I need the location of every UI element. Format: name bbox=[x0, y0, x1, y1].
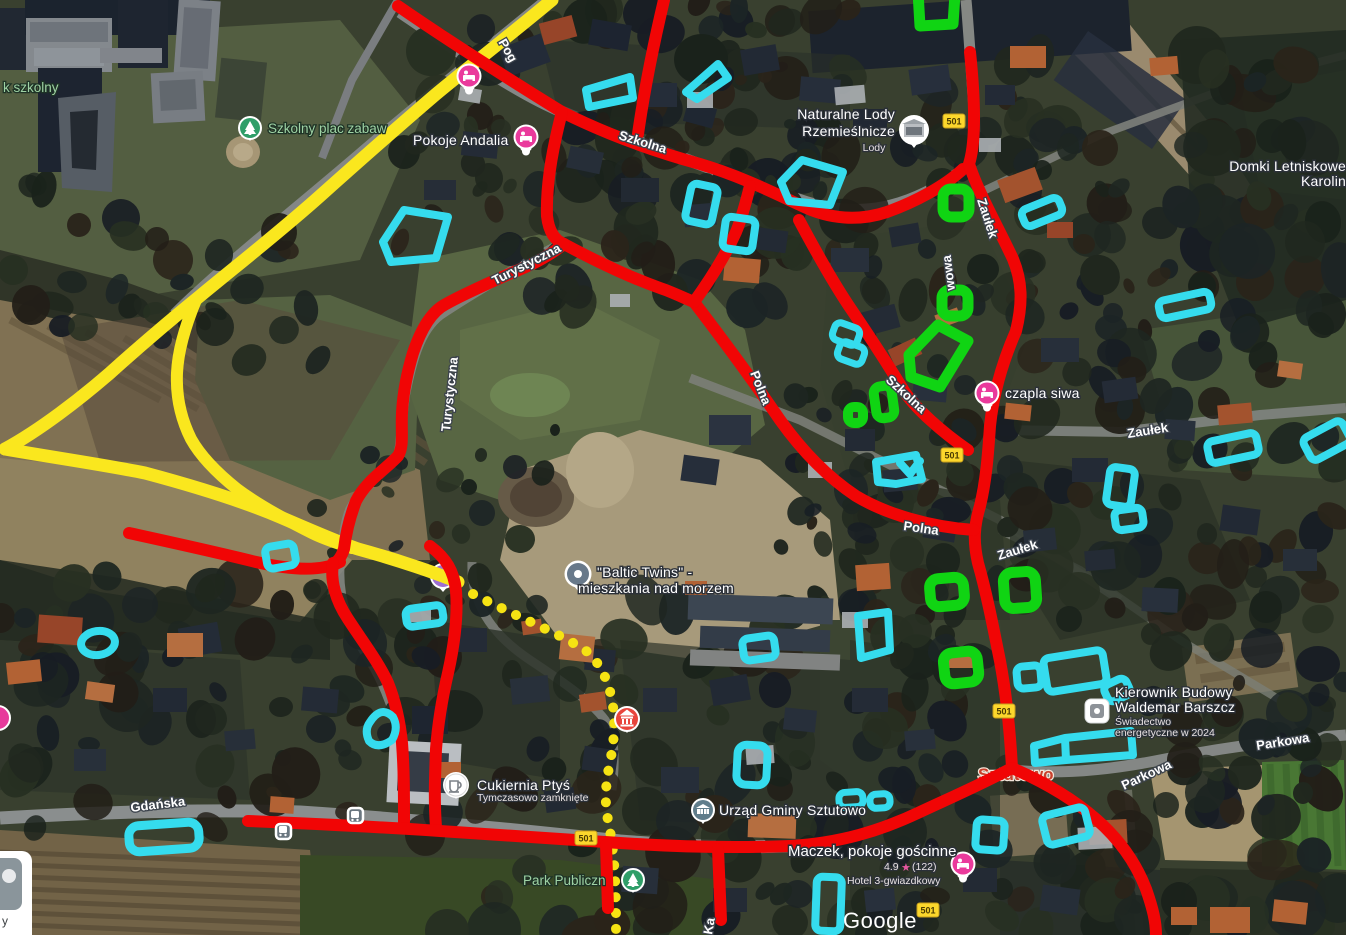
svg-text:501: 501 bbox=[578, 834, 593, 844]
svg-text:Urząd Gminy Sztutowo: Urząd Gminy Sztutowo bbox=[719, 802, 866, 818]
svg-text:Domki Letniskowe: Domki Letniskowe bbox=[1229, 158, 1346, 174]
svg-text:Tymczasowo zamknięte: Tymczasowo zamknięte bbox=[477, 792, 589, 804]
svg-text:Pokoje Andalia: Pokoje Andalia bbox=[413, 132, 508, 148]
svg-text:501: 501 bbox=[946, 117, 961, 127]
svg-text:czapla siwa: czapla siwa bbox=[1005, 385, 1080, 401]
svg-text:501: 501 bbox=[944, 451, 959, 461]
svg-text:501: 501 bbox=[920, 906, 935, 916]
svg-text:k szkolny: k szkolny bbox=[3, 80, 59, 95]
svg-text:Rzemieślnicze: Rzemieślnicze bbox=[802, 123, 895, 139]
svg-text:mieszkania nad morzem: mieszkania nad morzem bbox=[578, 580, 734, 596]
svg-text:Google: Google bbox=[843, 908, 917, 933]
svg-text:Maczek, pokoje gościnne: Maczek, pokoje gościnne bbox=[788, 843, 956, 860]
svg-text:Hotel 3-gwiazdkowy: Hotel 3-gwiazdkowy bbox=[847, 875, 941, 887]
svg-text:Naturalne Lody: Naturalne Lody bbox=[797, 106, 895, 122]
svg-text:"Baltic Twins" -: "Baltic Twins" - bbox=[597, 564, 692, 580]
svg-text:Waldemar Barszcz: Waldemar Barszcz bbox=[1115, 699, 1235, 715]
svg-text:Szkolny plac zabaw: Szkolny plac zabaw bbox=[268, 121, 387, 136]
svg-text:501: 501 bbox=[996, 707, 1011, 717]
svg-text:Lody: Lody bbox=[863, 142, 887, 154]
svg-text:★: ★ bbox=[901, 862, 911, 874]
svg-text:(122): (122) bbox=[912, 861, 937, 873]
svg-text:Kierownik Budowy: Kierownik Budowy bbox=[1115, 684, 1233, 700]
svg-text:energetyczne w 2024: energetyczne w 2024 bbox=[1115, 727, 1215, 739]
svg-text:y: y bbox=[2, 914, 8, 928]
svg-text:Cukiernia Ptyś: Cukiernia Ptyś bbox=[477, 777, 570, 793]
svg-text:Karolin: Karolin bbox=[1301, 173, 1346, 189]
svg-text:Park Publiczn: Park Publiczn bbox=[523, 873, 606, 888]
svg-text:4.9: 4.9 bbox=[884, 861, 899, 873]
